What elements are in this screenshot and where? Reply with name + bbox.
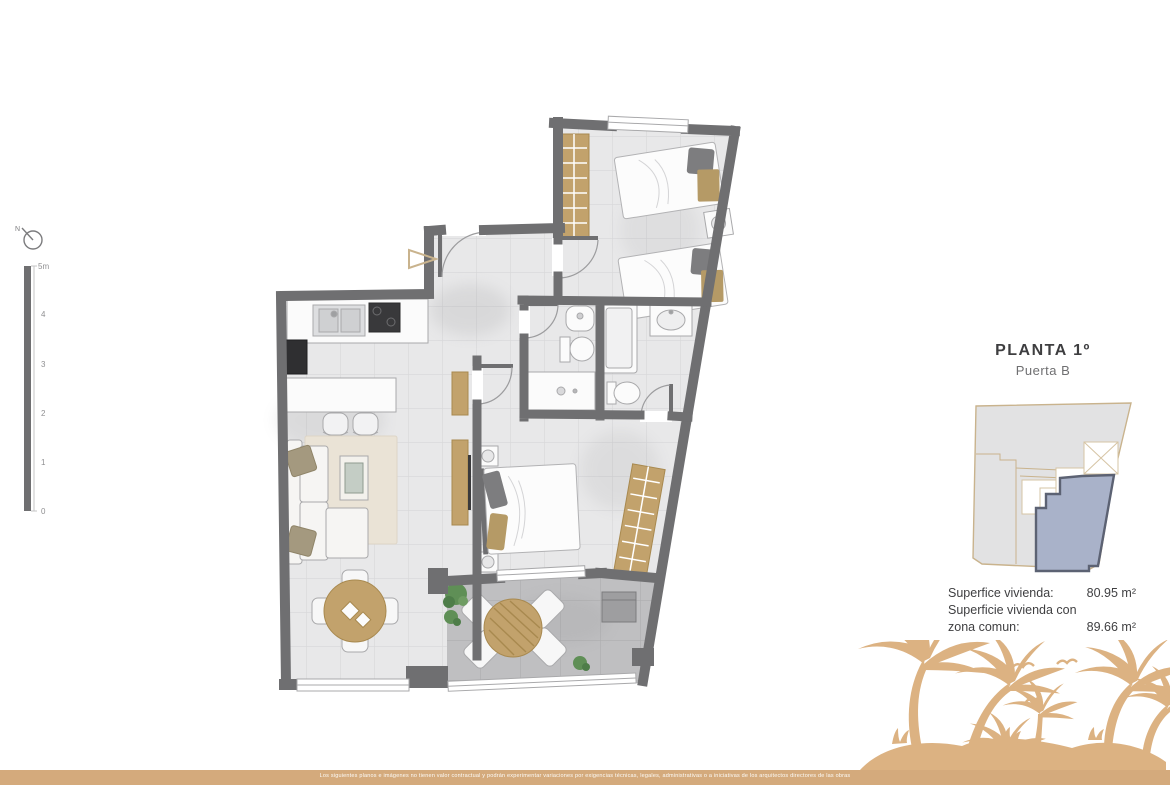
surface-row: Superficie vivienda con zona comun: 89.6… (948, 602, 1136, 635)
scale-tick-label: 5m (38, 262, 49, 271)
cooktop (369, 303, 400, 332)
floorplan-page: N (0, 0, 1170, 785)
floor-title: PLANTA 1º (950, 342, 1136, 360)
surface-row: Superfice vivienda: 80.95 m² (948, 585, 1136, 601)
surface-areas: Superfice vivienda: 80.95 m² Superficie … (948, 585, 1136, 635)
palm-island-illustration (852, 640, 1170, 772)
disclaimer-bar: Los siguientes planos e imágenes no tien… (0, 770, 1170, 785)
tv (468, 455, 471, 510)
coffee-table (340, 456, 368, 500)
toilet (560, 337, 570, 362)
scale-bar (24, 266, 37, 511)
surface-value: 89.66 m² (1087, 619, 1136, 635)
scale-tick-label: 3 (41, 360, 45, 369)
living-room-window (297, 679, 409, 691)
terrace-table (484, 599, 542, 657)
scale-tick-label: 2 (41, 409, 45, 418)
surface-label: Superficie vivienda con zona comun: (948, 602, 1082, 635)
kitchen-island (284, 378, 396, 412)
double-bed (479, 464, 580, 555)
stair-core-icon (1084, 442, 1118, 474)
ac-unit (602, 592, 636, 622)
scale-tick-label: 1 (41, 458, 45, 467)
compass-icon: N (15, 226, 42, 249)
door-subtitle: Puerta B (950, 363, 1136, 378)
surface-label: Superfice vivienda: (948, 585, 1054, 601)
scale-tick-label: 4 (41, 310, 45, 319)
palm-silhouette (858, 640, 1170, 772)
unit-info: PLANTA 1º Puerta B (950, 342, 1136, 378)
scale-tick-label: 0 (41, 507, 45, 516)
wardrobe (559, 134, 589, 238)
key-plan (960, 398, 1138, 578)
surface-value: 80.95 m² (1087, 585, 1136, 601)
compass-north-label: N (15, 226, 20, 233)
disclaimer-text: Los siguientes planos e imágenes no tien… (320, 773, 851, 779)
tv-sideboard (452, 372, 471, 525)
